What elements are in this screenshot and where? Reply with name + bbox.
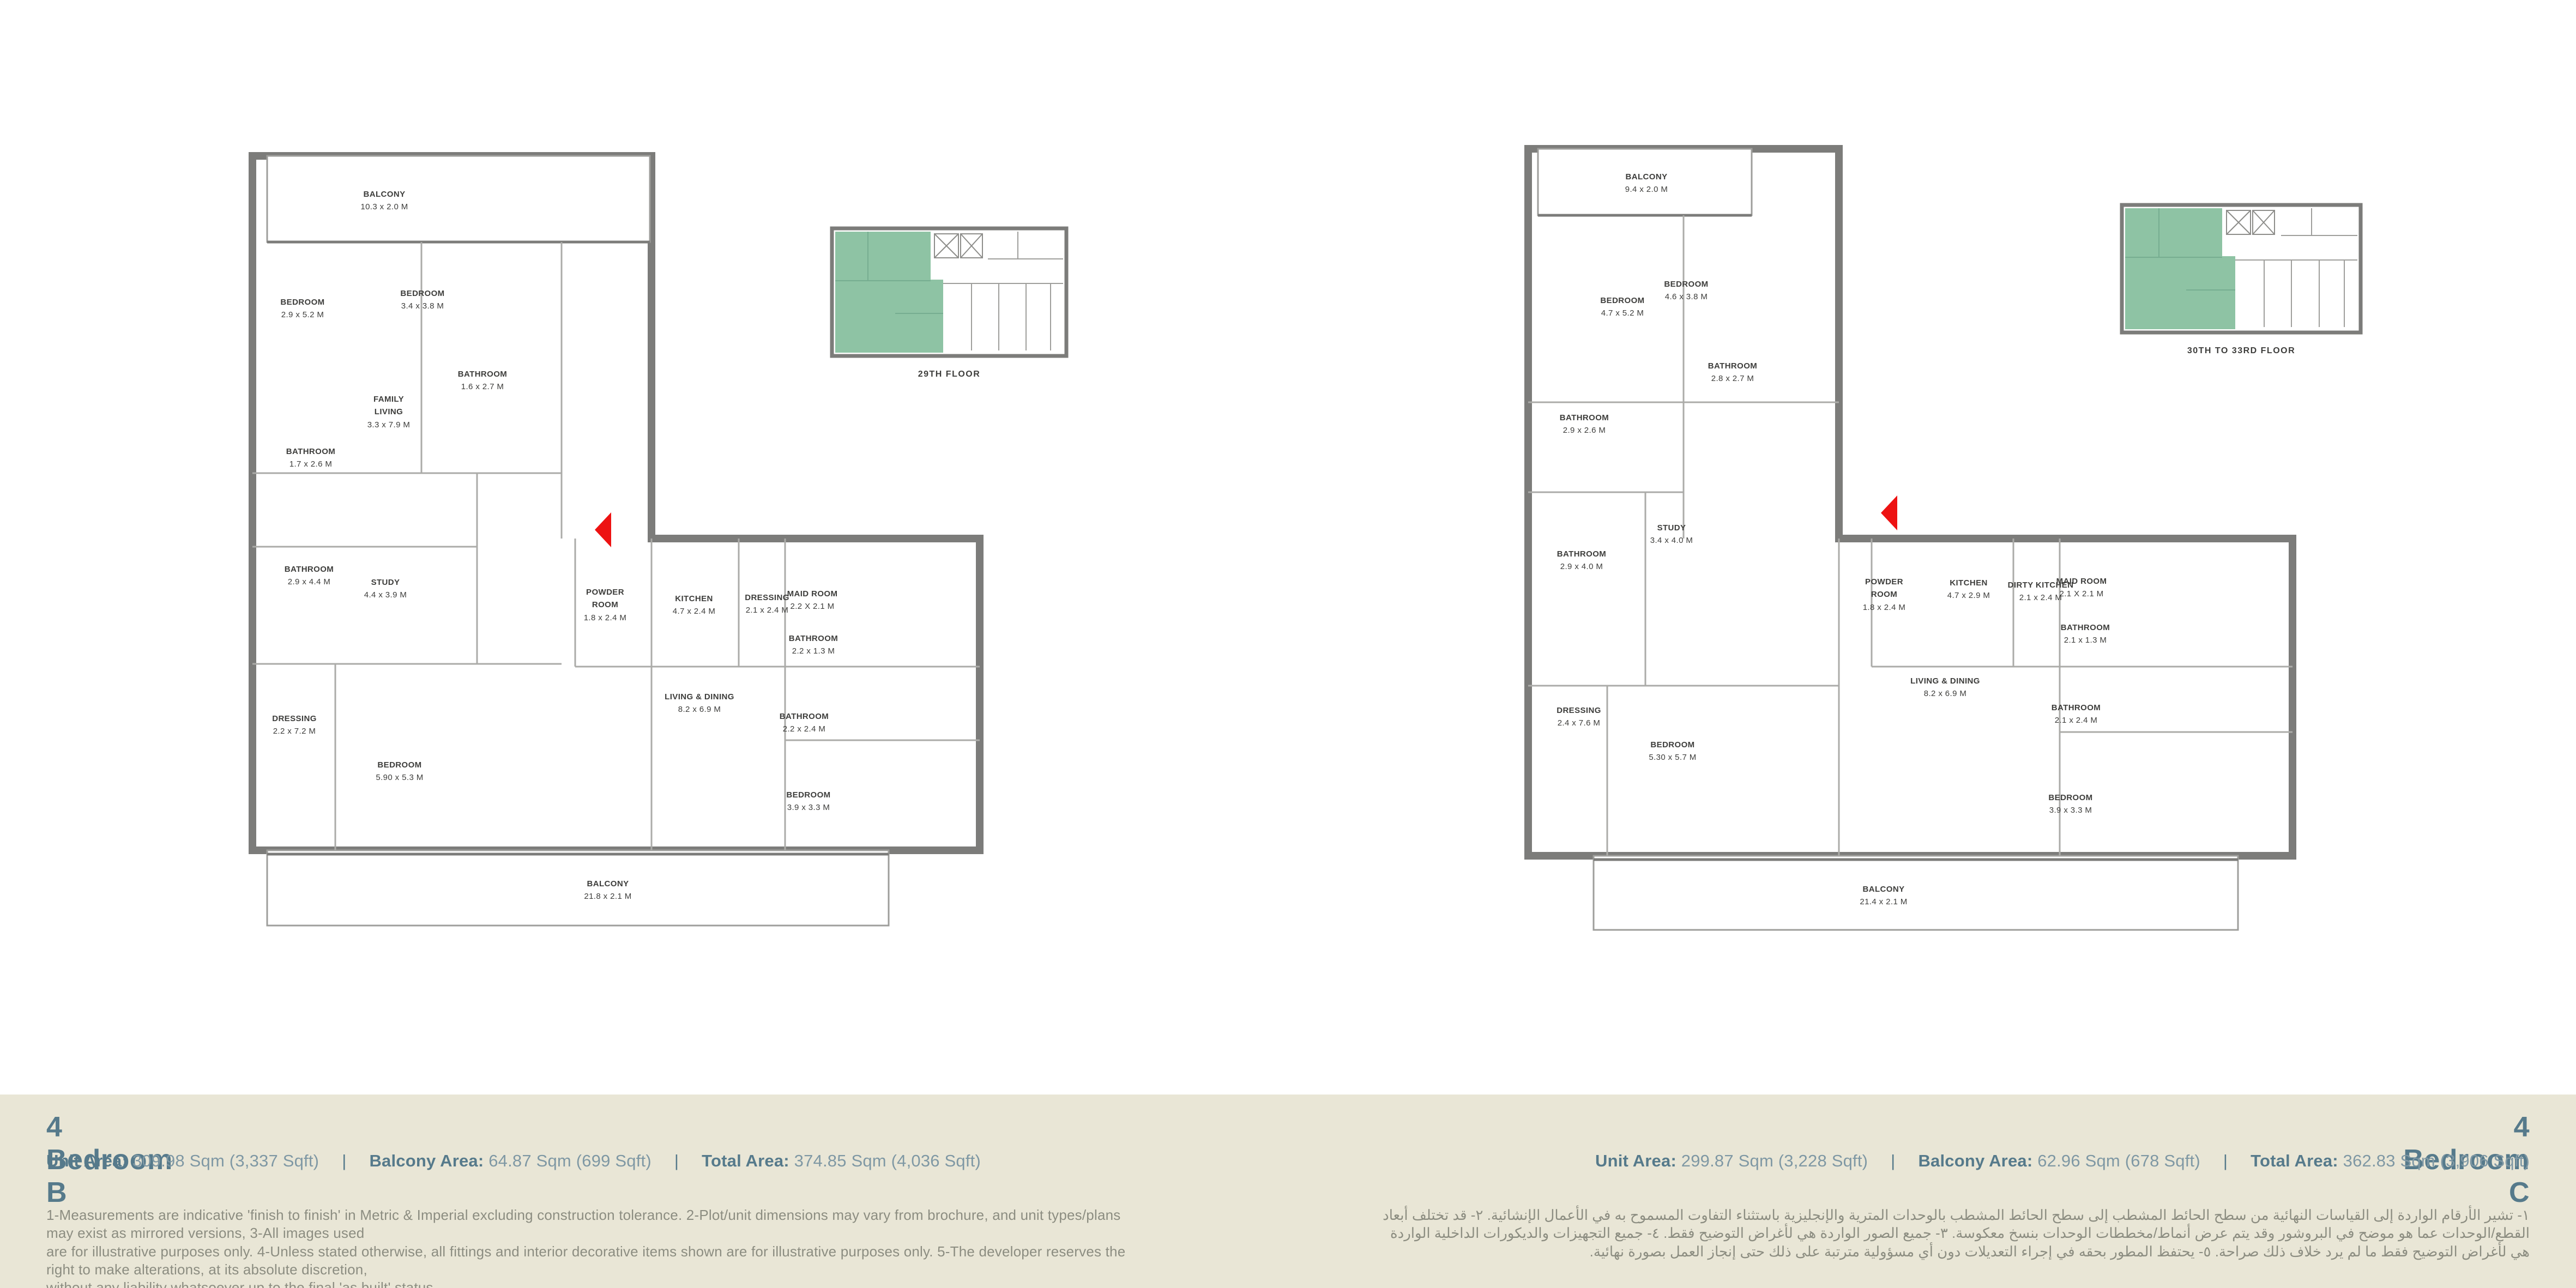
stat-divider: |	[2223, 1151, 2228, 1170]
room-label: LIVING & DINING8.2 x 6.9 M	[665, 691, 734, 716]
disclaimer-line: are for illustrative purposes only. 4-Un…	[46, 1243, 1137, 1279]
key-plan-b: 29TH FLOOR	[830, 226, 1069, 379]
room-label: BATHROOM2.9 x 4.0 M	[1557, 548, 1606, 573]
room-label: FAMILY LIVING3.3 x 7.9 M	[361, 393, 416, 431]
key-plan-c-drawing	[2120, 203, 2363, 335]
room-label: BALCONY9.4 x 2.0 M	[1625, 171, 1668, 196]
brochure-page: BALCONY10.3 x 2.0 M BEDROOM2.9 x 5.2 M B…	[0, 0, 2576, 1288]
disclaimer-line: 1-Measurements are indicative 'finish to…	[46, 1206, 1137, 1243]
highlighted-unit-area	[835, 232, 943, 353]
room-label: BALCONY10.3 x 2.0 M	[360, 188, 408, 214]
balcony-area-label: Balcony Area:	[1918, 1151, 2032, 1170]
balcony-area-value: 64.87 Sqm (699 Sqft)	[488, 1151, 651, 1170]
unit-b-stats: Unit Area: 309.98 Sqm (3,337 Sqft)|Balco…	[46, 1151, 981, 1171]
balcony-bottom-outline	[267, 850, 889, 926]
stat-divider: |	[674, 1151, 679, 1170]
room-label: KITCHEN4.7 x 2.4 M	[673, 592, 716, 618]
entrance-arrow-icon	[595, 512, 611, 547]
room-label: BATHROOM2.2 x 2.4 M	[780, 710, 829, 736]
room-label: DRESSING2.4 x 7.6 M	[1557, 704, 1601, 730]
unit-area-label: Unit Area:	[46, 1151, 128, 1170]
room-label: BATHROOM2.9 x 4.4 M	[285, 563, 334, 589]
room-label: BEDROOM4.7 x 5.2 M	[1600, 294, 1644, 320]
room-label: BEDROOM4.6 x 3.8 M	[1664, 278, 1708, 304]
room-label: BEDROOM5.90 x 5.3 M	[376, 759, 423, 784]
unit-area-value: 299.87 Sqm (3,228 Sqft)	[1681, 1151, 1868, 1170]
room-label: STUDY4.4 x 3.9 M	[364, 576, 407, 602]
room-label: BEDROOM3.9 x 3.3 M	[2048, 791, 2092, 817]
room-label: BEDROOM2.9 x 5.2 M	[280, 296, 324, 322]
total-area-value: 362.83 Sqm (3,906 Sqft)	[2343, 1151, 2530, 1170]
room-label: STUDY3.4 x 4.0 M	[1650, 522, 1693, 547]
room-label: BEDROOM3.9 x 3.3 M	[786, 789, 830, 814]
room-label: DRESSING2.1 x 2.4 M	[745, 591, 789, 617]
unit-area-label: Unit Area:	[1595, 1151, 1676, 1170]
room-label: BATHROOM2.9 x 2.6 M	[1560, 412, 1609, 437]
key-plan-b-label: 29TH FLOOR	[830, 370, 1069, 379]
stat-divider: |	[1891, 1151, 1895, 1170]
total-area-label: Total Area:	[2251, 1151, 2338, 1170]
room-label: BEDROOM5.30 x 5.7 M	[1649, 739, 1696, 764]
room-label: BEDROOM3.4 x 3.8 M	[400, 287, 444, 313]
unit-area-value: 309.98 Sqm (3,337 Sqft)	[132, 1151, 319, 1170]
total-area-label: Total Area:	[702, 1151, 789, 1170]
room-label: BALCONY21.8 x 2.1 M	[584, 878, 631, 903]
room-label: DRESSING2.2 x 7.2 M	[272, 712, 317, 738]
highlighted-unit-area	[2125, 208, 2235, 329]
disclaimer-line: without any liability whatsoever up to t…	[46, 1279, 1137, 1288]
key-plan-b-drawing	[830, 226, 1069, 358]
disclaimer-english: 1-Measurements are indicative 'finish to…	[46, 1206, 1137, 1288]
key-plan-c: 30TH TO 33RD FLOOR	[2120, 203, 2363, 356]
balcony-top-outline	[267, 156, 650, 242]
entrance-arrow-icon	[1881, 495, 1897, 530]
stat-divider: |	[342, 1151, 346, 1170]
room-label: KITCHEN4.7 x 2.9 M	[1947, 577, 1990, 602]
room-label: BATHROOM2.1 x 2.4 M	[2052, 702, 2101, 727]
room-label: POWDER ROOM1.8 x 2.4 M	[578, 586, 632, 624]
room-label: MAID ROOM2.1 X 2.1 M	[2056, 575, 2107, 601]
room-label: BATHROOM2.8 x 2.7 M	[1708, 360, 1757, 385]
room-label: BATHROOM2.2 x 1.3 M	[789, 632, 838, 658]
room-label: BATHROOM1.7 x 2.6 M	[286, 445, 335, 471]
balcony-bottom-outline	[1594, 856, 2238, 930]
room-label: BALCONY21.4 x 2.1 M	[1860, 883, 1907, 909]
room-label: BATHROOM2.1 x 1.3 M	[2061, 621, 2110, 647]
unit-c-stats: Unit Area: 299.87 Sqm (3,228 Sqft)|Balco…	[1595, 1151, 2530, 1171]
room-label: MAID ROOM2.2 X 2.1 M	[787, 588, 838, 613]
key-plan-c-label: 30TH TO 33RD FLOOR	[2120, 346, 2363, 356]
room-label: BATHROOM1.6 x 2.7 M	[458, 368, 507, 394]
disclaimer-arabic: ١- تشير الأرقام الواردة إلى القياسات الن…	[1374, 1206, 2530, 1261]
room-label: LIVING & DINING8.2 x 6.9 M	[1910, 675, 1980, 700]
room-label: POWDER ROOM1.8 x 2.4 M	[1857, 576, 1911, 614]
balcony-area-value: 62.96 Sqm (678 Sqft)	[2037, 1151, 2200, 1170]
footer-band: 4 Bedroom B Unit Area: 309.98 Sqm (3,337…	[0, 1095, 2576, 1288]
total-area-value: 374.85 Sqm (4,036 Sqft)	[794, 1151, 981, 1170]
balcony-area-label: Balcony Area:	[369, 1151, 484, 1170]
